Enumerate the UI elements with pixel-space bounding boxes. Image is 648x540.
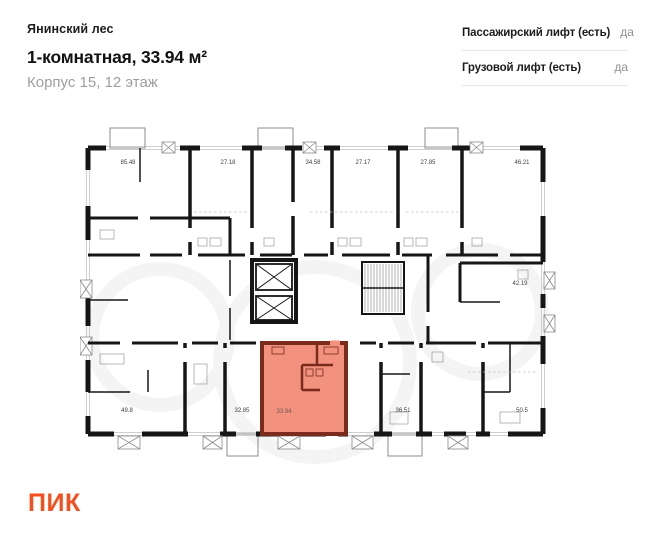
- area-label-highlighted: 33.94: [276, 409, 292, 415]
- area-label: 36.51: [395, 408, 411, 414]
- attribute-row-passenger-lift: Пассажирский лифт (есть) да: [462, 16, 628, 51]
- staircase: [362, 262, 404, 314]
- window-icon: [544, 272, 555, 289]
- window-icon: [80, 280, 92, 298]
- window-icon: [448, 436, 468, 449]
- window-icon: [278, 436, 300, 449]
- area-label: 50.5: [516, 408, 528, 414]
- window-icon: [118, 436, 140, 449]
- area-label: 32.85: [234, 408, 250, 414]
- area-label: 27.18: [220, 160, 236, 166]
- attribute-row-freight-lift: Грузовой лифт (есть) да: [462, 51, 628, 86]
- window-icon: [303, 142, 316, 153]
- window-icon: [80, 337, 92, 355]
- attribute-value: да: [604, 60, 628, 74]
- attribute-value: да: [610, 25, 634, 39]
- pik-logo: ПИК: [28, 489, 81, 518]
- window-icon: [203, 436, 222, 449]
- area-label: 27.85: [420, 160, 436, 166]
- listing-title: 1-комнатная, 33.94 м²: [27, 47, 357, 68]
- attribute-label: Пассажирский лифт (есть): [462, 27, 610, 39]
- highlighted-apartment[interactable]: 33.94: [262, 343, 346, 434]
- area-label: 42.19: [512, 281, 528, 287]
- window-icon: [162, 142, 175, 153]
- window-icon: [470, 142, 483, 153]
- area-label: 49.8: [121, 408, 133, 414]
- listing-subtitle: Корпус 15, 12 этаж: [27, 74, 357, 91]
- attributes-panel: Пассажирский лифт (есть) да Грузовой лиф…: [462, 16, 628, 86]
- header: Янинский лес 1-комнатная, 33.94 м² Корпу…: [27, 22, 357, 91]
- listing-floorplan-page: Янинский лес 1-комнатная, 33.94 м² Корпу…: [0, 0, 648, 540]
- area-label: 34.58: [305, 160, 321, 166]
- window-icon: [352, 436, 373, 449]
- area-label: 85.48: [120, 160, 136, 166]
- window-icon: [544, 315, 555, 332]
- project-name: Янинский лес: [27, 22, 357, 36]
- area-label: 46.21: [514, 160, 530, 166]
- floorplan-image[interactable]: 33.94 85.48 27.18 34.58 27.17 27.85 46.2…: [80, 112, 560, 464]
- attribute-label: Грузовой лифт (есть): [462, 62, 581, 74]
- area-label: 27.17: [355, 160, 371, 166]
